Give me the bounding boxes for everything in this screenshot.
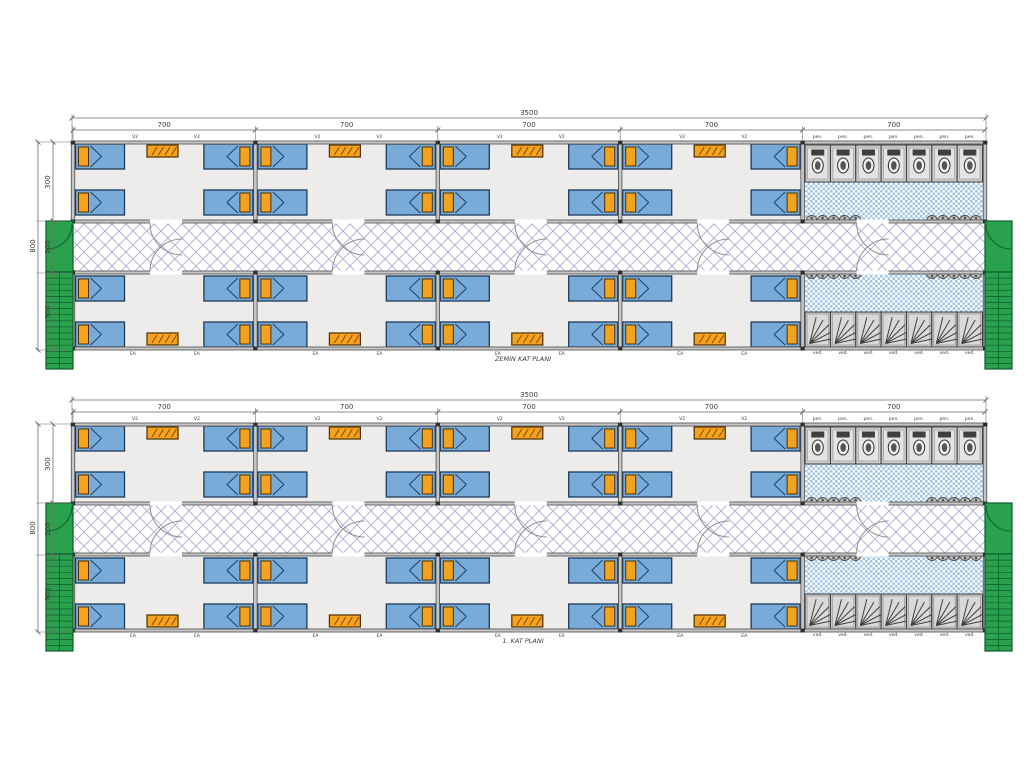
pillow: [626, 607, 636, 626]
dim-module-width: 700: [340, 403, 353, 411]
window-label: V2: [314, 134, 320, 140]
pillow: [787, 147, 797, 166]
bed: [751, 190, 800, 215]
shower-label: ved.: [889, 632, 899, 638]
pillow: [79, 607, 89, 626]
corridor: [73, 223, 985, 271]
bed: [386, 426, 435, 451]
bed: [440, 426, 489, 451]
bed: [76, 426, 125, 451]
bed: [204, 144, 253, 169]
dim-height-total: 800: [29, 239, 37, 252]
pillow: [787, 325, 797, 344]
bed: [258, 190, 307, 215]
pillow: [261, 325, 271, 344]
dim-height-segment: 200: [44, 522, 52, 535]
dim-height-segment: 300: [44, 587, 52, 600]
pillow: [240, 429, 250, 448]
pillow: [626, 429, 636, 448]
stair-landing: [985, 503, 1012, 554]
pillow: [240, 279, 250, 298]
table: [694, 615, 725, 627]
dim-module-width: 700: [158, 121, 171, 129]
bed: [623, 558, 672, 583]
bath-window-label: pen.: [838, 135, 848, 140]
table: [147, 615, 178, 627]
bed: [258, 604, 307, 629]
bed: [76, 276, 125, 301]
table: [694, 145, 725, 157]
bed: [569, 322, 618, 347]
bed: [751, 426, 800, 451]
plan-title: 1. KAT PLANI: [502, 637, 543, 645]
pillow: [605, 279, 615, 298]
window-label: V2: [679, 416, 685, 422]
toilet-tank: [837, 150, 850, 156]
bath-window-label: pen.: [889, 135, 899, 140]
toilet-tank: [811, 150, 824, 156]
corridor: [73, 505, 985, 553]
dim-module-width: 700: [887, 403, 900, 411]
bed: [76, 144, 125, 169]
window-label: V2: [559, 416, 565, 422]
rear-window-label: EA: [376, 633, 383, 639]
bed: [386, 558, 435, 583]
toilet-tank: [963, 432, 976, 438]
window-label: V2: [497, 134, 503, 140]
bed: [623, 276, 672, 301]
pillow: [787, 429, 797, 448]
dim-module-width: 700: [705, 403, 718, 411]
dim-height-segment: 200: [44, 240, 52, 253]
bath-window-label: pen.: [940, 417, 950, 422]
rear-window-label: EA: [677, 633, 684, 639]
dim-module-width: 700: [887, 121, 900, 129]
pillow: [261, 429, 271, 448]
ground-floor-plan: 3500700700700700700800300200300V2V2EAEAV…: [29, 109, 1012, 369]
window-label: V2: [194, 416, 200, 422]
rear-window-label: EA: [194, 633, 201, 639]
pillow: [422, 279, 432, 298]
bed: [258, 472, 307, 497]
floor-plan-drawing: 3500700700700700700800300200300V2V2EAEAV…: [0, 0, 1024, 768]
bed: [440, 144, 489, 169]
bed: [569, 558, 618, 583]
bed: [569, 276, 618, 301]
bed: [440, 604, 489, 629]
toilet-tank: [862, 150, 875, 156]
pillow: [422, 475, 432, 494]
toilet-tank: [913, 150, 926, 156]
dim-height-segment: 300: [44, 305, 52, 318]
window-label: V2: [559, 134, 565, 140]
shower-label: ved.: [965, 632, 975, 638]
pillow: [79, 429, 89, 448]
dim-height-segment: 300: [44, 457, 52, 470]
pillow: [605, 193, 615, 212]
bed: [751, 604, 800, 629]
pillow: [240, 561, 250, 580]
bed: [258, 558, 307, 583]
pillow: [261, 147, 271, 166]
pillow: [787, 279, 797, 298]
toilet-tank: [887, 432, 900, 438]
dim-total-width: 3500: [520, 109, 538, 117]
stair-right: [985, 503, 1012, 651]
pillow: [443, 561, 453, 580]
rear-window-label: EA: [559, 351, 566, 357]
floor-plan-sheet: 3500700700700700700800300200300V2V2EAEAV…: [0, 0, 1024, 768]
table: [147, 145, 178, 157]
window-label: V2: [194, 134, 200, 140]
bed: [386, 190, 435, 215]
table: [147, 333, 178, 345]
shower-label: ved.: [813, 632, 823, 638]
bed: [258, 322, 307, 347]
toilet-tank: [811, 432, 824, 438]
bath-floor: [803, 556, 985, 594]
rear-window-label: EA: [130, 351, 137, 357]
rear-window-label: EA: [376, 351, 383, 357]
dim-height-segment: 300: [44, 175, 52, 188]
table: [512, 427, 543, 439]
toilet-tank: [963, 150, 976, 156]
bed: [751, 144, 800, 169]
pillow: [79, 475, 89, 494]
shower-label: ved.: [965, 350, 975, 356]
bed: [76, 190, 125, 215]
bed: [751, 322, 800, 347]
bed: [204, 322, 253, 347]
window-label: V2: [314, 416, 320, 422]
bed: [204, 426, 253, 451]
pillow: [605, 429, 615, 448]
toilet-tank: [913, 432, 926, 438]
bed: [76, 322, 125, 347]
pillow: [261, 475, 271, 494]
wc-stall: [881, 427, 906, 464]
bed: [440, 276, 489, 301]
wc-stall: [881, 145, 906, 182]
pillow: [443, 325, 453, 344]
wc-stall: [957, 145, 982, 182]
bed: [623, 604, 672, 629]
shower-label: ved.: [864, 632, 874, 638]
shower-label: ved.: [914, 632, 924, 638]
pillow: [787, 561, 797, 580]
wc-stall: [805, 427, 830, 464]
pillow: [261, 607, 271, 626]
bed: [76, 604, 125, 629]
pillow: [626, 561, 636, 580]
bed: [569, 604, 618, 629]
shower-label: ved.: [940, 350, 950, 356]
bath-window-label: pen.: [914, 417, 924, 422]
wc-stall: [932, 427, 957, 464]
pillow: [787, 193, 797, 212]
shower-label: ved.: [813, 350, 823, 356]
pillow: [240, 475, 250, 494]
window-label: V2: [376, 134, 382, 140]
pillow: [79, 147, 89, 166]
table: [329, 615, 360, 627]
window-label: V2: [679, 134, 685, 140]
window-label: V2: [741, 134, 747, 140]
dim-height-total: 800: [29, 521, 37, 534]
bath-window-label: pen.: [863, 135, 873, 140]
bed: [386, 604, 435, 629]
table: [512, 145, 543, 157]
shower-label: ved.: [889, 350, 899, 356]
wc-stall: [856, 145, 881, 182]
pillow: [240, 147, 250, 166]
pillow: [605, 561, 615, 580]
rear-window-label: EA: [559, 633, 566, 639]
table: [147, 427, 178, 439]
table: [512, 615, 543, 627]
pillow: [422, 429, 432, 448]
rear-window-label: EA: [741, 351, 748, 357]
window-label: V2: [132, 416, 138, 422]
bath-window-label: pen.: [914, 135, 924, 140]
bed: [623, 190, 672, 215]
bath-floor: [803, 274, 985, 312]
bed: [569, 190, 618, 215]
pillow: [261, 193, 271, 212]
shower-label: ved.: [838, 632, 848, 638]
wc-stall: [805, 145, 830, 182]
window-label: V2: [132, 134, 138, 140]
toilet-tank: [862, 432, 875, 438]
bed: [623, 322, 672, 347]
shower-label: ved.: [914, 350, 924, 356]
pillow: [79, 561, 89, 580]
table: [329, 145, 360, 157]
dim-total-width: 3500: [520, 391, 538, 399]
stair-right: [985, 221, 1012, 369]
pillow: [79, 279, 89, 298]
table: [512, 333, 543, 345]
bed: [204, 190, 253, 215]
bed: [623, 144, 672, 169]
bed: [440, 322, 489, 347]
rear-window-label: EA: [495, 633, 502, 639]
bath-window-label: pen.: [889, 417, 899, 422]
pillow: [626, 475, 636, 494]
pillow: [443, 429, 453, 448]
rear-window-label: EA: [312, 351, 319, 357]
table: [329, 333, 360, 345]
pillow: [626, 325, 636, 344]
bed: [569, 472, 618, 497]
pillow: [787, 475, 797, 494]
pillow: [626, 279, 636, 298]
bath-window-label: pen.: [965, 135, 975, 140]
pillow: [443, 147, 453, 166]
bed: [204, 558, 253, 583]
wc-stall: [856, 427, 881, 464]
bed: [204, 604, 253, 629]
table: [329, 427, 360, 439]
wc-stall: [830, 427, 855, 464]
wc-stall: [830, 145, 855, 182]
bed: [623, 426, 672, 451]
bath-window-label: pen.: [813, 135, 823, 140]
plan-title: ZEMİN KAT PLANI: [494, 354, 551, 363]
shower-label: ved.: [940, 632, 950, 638]
pillow: [605, 607, 615, 626]
pillow: [443, 475, 453, 494]
table: [694, 427, 725, 439]
dim-module-width: 700: [522, 403, 535, 411]
shower-label: ved.: [864, 350, 874, 356]
bed: [569, 426, 618, 451]
bath-window-label: pen.: [838, 417, 848, 422]
toilet-tank: [837, 432, 850, 438]
dim-module-width: 700: [340, 121, 353, 129]
window-label: V2: [497, 416, 503, 422]
pillow: [605, 475, 615, 494]
wc-stall: [957, 427, 982, 464]
shower-label: ved.: [838, 350, 848, 356]
pillow: [443, 607, 453, 626]
bed: [258, 144, 307, 169]
pillow: [626, 193, 636, 212]
bath-window-label: pen.: [965, 417, 975, 422]
stair-landing: [985, 221, 1012, 272]
rear-window-label: EA: [130, 633, 137, 639]
bed: [751, 558, 800, 583]
pillow: [422, 325, 432, 344]
bed: [204, 276, 253, 301]
pillow: [261, 561, 271, 580]
bed: [440, 472, 489, 497]
pillow: [605, 325, 615, 344]
toilet-tank: [938, 432, 951, 438]
bed: [258, 426, 307, 451]
bed: [76, 558, 125, 583]
wc-stall: [906, 145, 931, 182]
bed: [386, 472, 435, 497]
bed: [204, 472, 253, 497]
bed: [623, 472, 672, 497]
bed: [386, 322, 435, 347]
wc-stall: [906, 427, 931, 464]
pillow: [79, 193, 89, 212]
table: [694, 333, 725, 345]
dim-module-width: 700: [705, 121, 718, 129]
bed: [258, 276, 307, 301]
bath-window-label: pen.: [940, 135, 950, 140]
pillow: [443, 193, 453, 212]
toilet-tank: [938, 150, 951, 156]
pillow: [422, 561, 432, 580]
bed: [751, 276, 800, 301]
bath-floor: [803, 182, 985, 222]
dim-module-width: 700: [158, 403, 171, 411]
bed: [76, 472, 125, 497]
pillow: [626, 147, 636, 166]
wc-stall: [932, 145, 957, 182]
bath-window-label: pen.: [813, 417, 823, 422]
pillow: [261, 279, 271, 298]
toilet-tank: [887, 150, 900, 156]
bath-window-label: pen.: [863, 417, 873, 422]
pillow: [422, 147, 432, 166]
pillow: [240, 325, 250, 344]
window-label: V2: [376, 416, 382, 422]
pillow: [240, 193, 250, 212]
pillow: [79, 325, 89, 344]
pillow: [443, 279, 453, 298]
pillow: [422, 193, 432, 212]
pillow: [787, 607, 797, 626]
rear-window-label: EA: [677, 351, 684, 357]
bed: [751, 472, 800, 497]
pillow: [240, 607, 250, 626]
bed: [569, 144, 618, 169]
window-label: V2: [741, 416, 747, 422]
bed: [386, 144, 435, 169]
rear-window-label: EA: [194, 351, 201, 357]
rear-window-label: EA: [741, 633, 748, 639]
bed: [386, 276, 435, 301]
dim-module-width: 700: [522, 121, 535, 129]
bed: [440, 190, 489, 215]
pillow: [605, 147, 615, 166]
pillow: [422, 607, 432, 626]
bath-floor: [803, 464, 985, 504]
bed: [440, 558, 489, 583]
first-floor-plan: 3500700700700700700800300200300V2V2EAEAV…: [29, 391, 1012, 651]
rear-window-label: EA: [312, 633, 319, 639]
